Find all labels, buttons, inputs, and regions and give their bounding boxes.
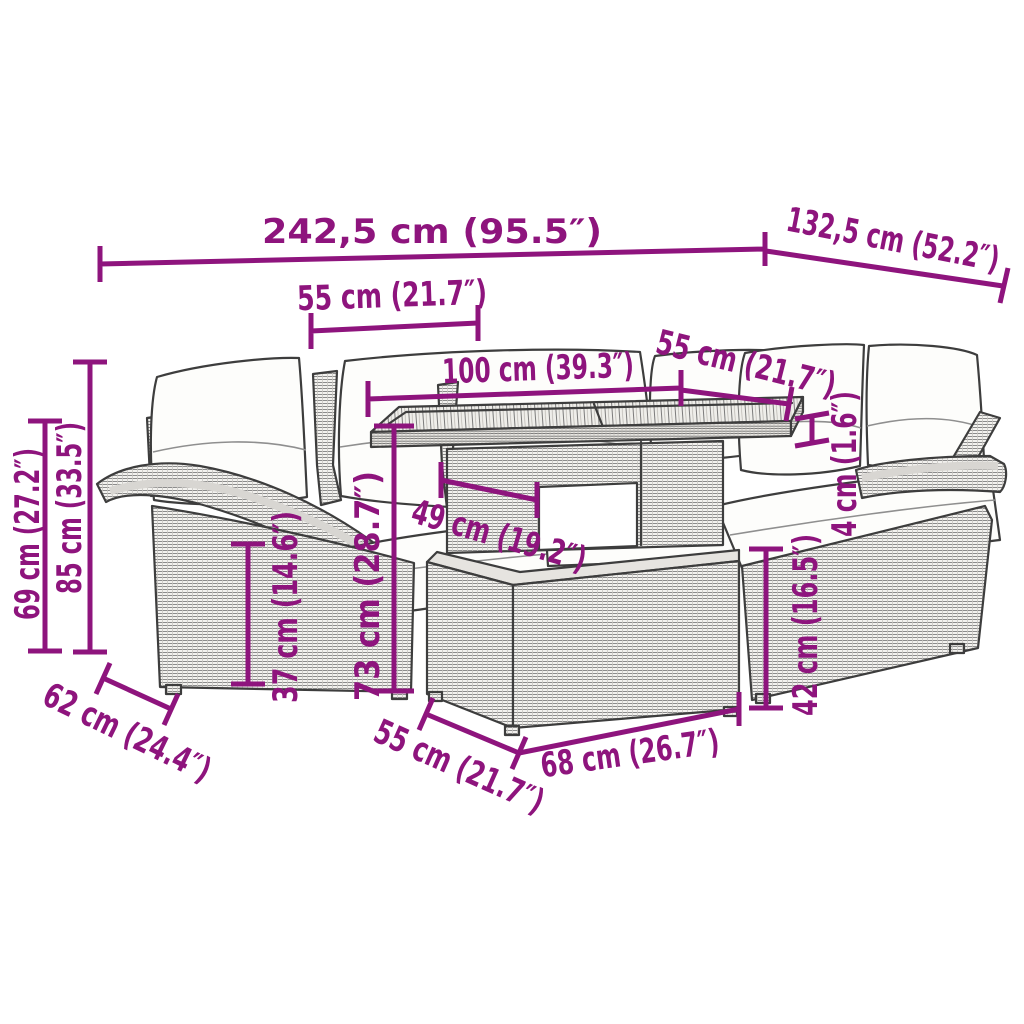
- diagram-canvas: 242,5 cm (95.5″) 132,5 cm (52.2″) 55 cm …: [0, 0, 1024, 1024]
- dim-label-total-width: 242,5 cm (95.5″): [262, 212, 602, 252]
- furniture-foot: [950, 644, 964, 653]
- dim-label-back-height: 85 cm (33.5″): [50, 422, 90, 594]
- ottoman: [427, 550, 739, 735]
- dimension-diagram: 242,5 cm (95.5″) 132,5 cm (52.2″) 55 cm …: [0, 0, 1024, 1024]
- dim-label-table-length: 100 cm (39.3″): [441, 346, 634, 393]
- dim-label-armrest-height: 69 cm (27.2″): [8, 448, 48, 620]
- dim-label-seat-height: 37 cm (14.6″): [266, 511, 306, 703]
- dim-label-table-height: 73 cm (28.7″): [348, 471, 388, 701]
- dim-label-left-seat-width: 55 cm (21.7″): [296, 273, 487, 320]
- ottoman-front-face: [513, 561, 739, 728]
- dim-label-ottoman-height: 42 cm (16.5″): [786, 534, 826, 716]
- furniture-foot: [505, 726, 519, 735]
- furniture-foot: [166, 685, 181, 694]
- dim-label-tabletop-thickness: 4 cm (1.6″): [825, 391, 865, 537]
